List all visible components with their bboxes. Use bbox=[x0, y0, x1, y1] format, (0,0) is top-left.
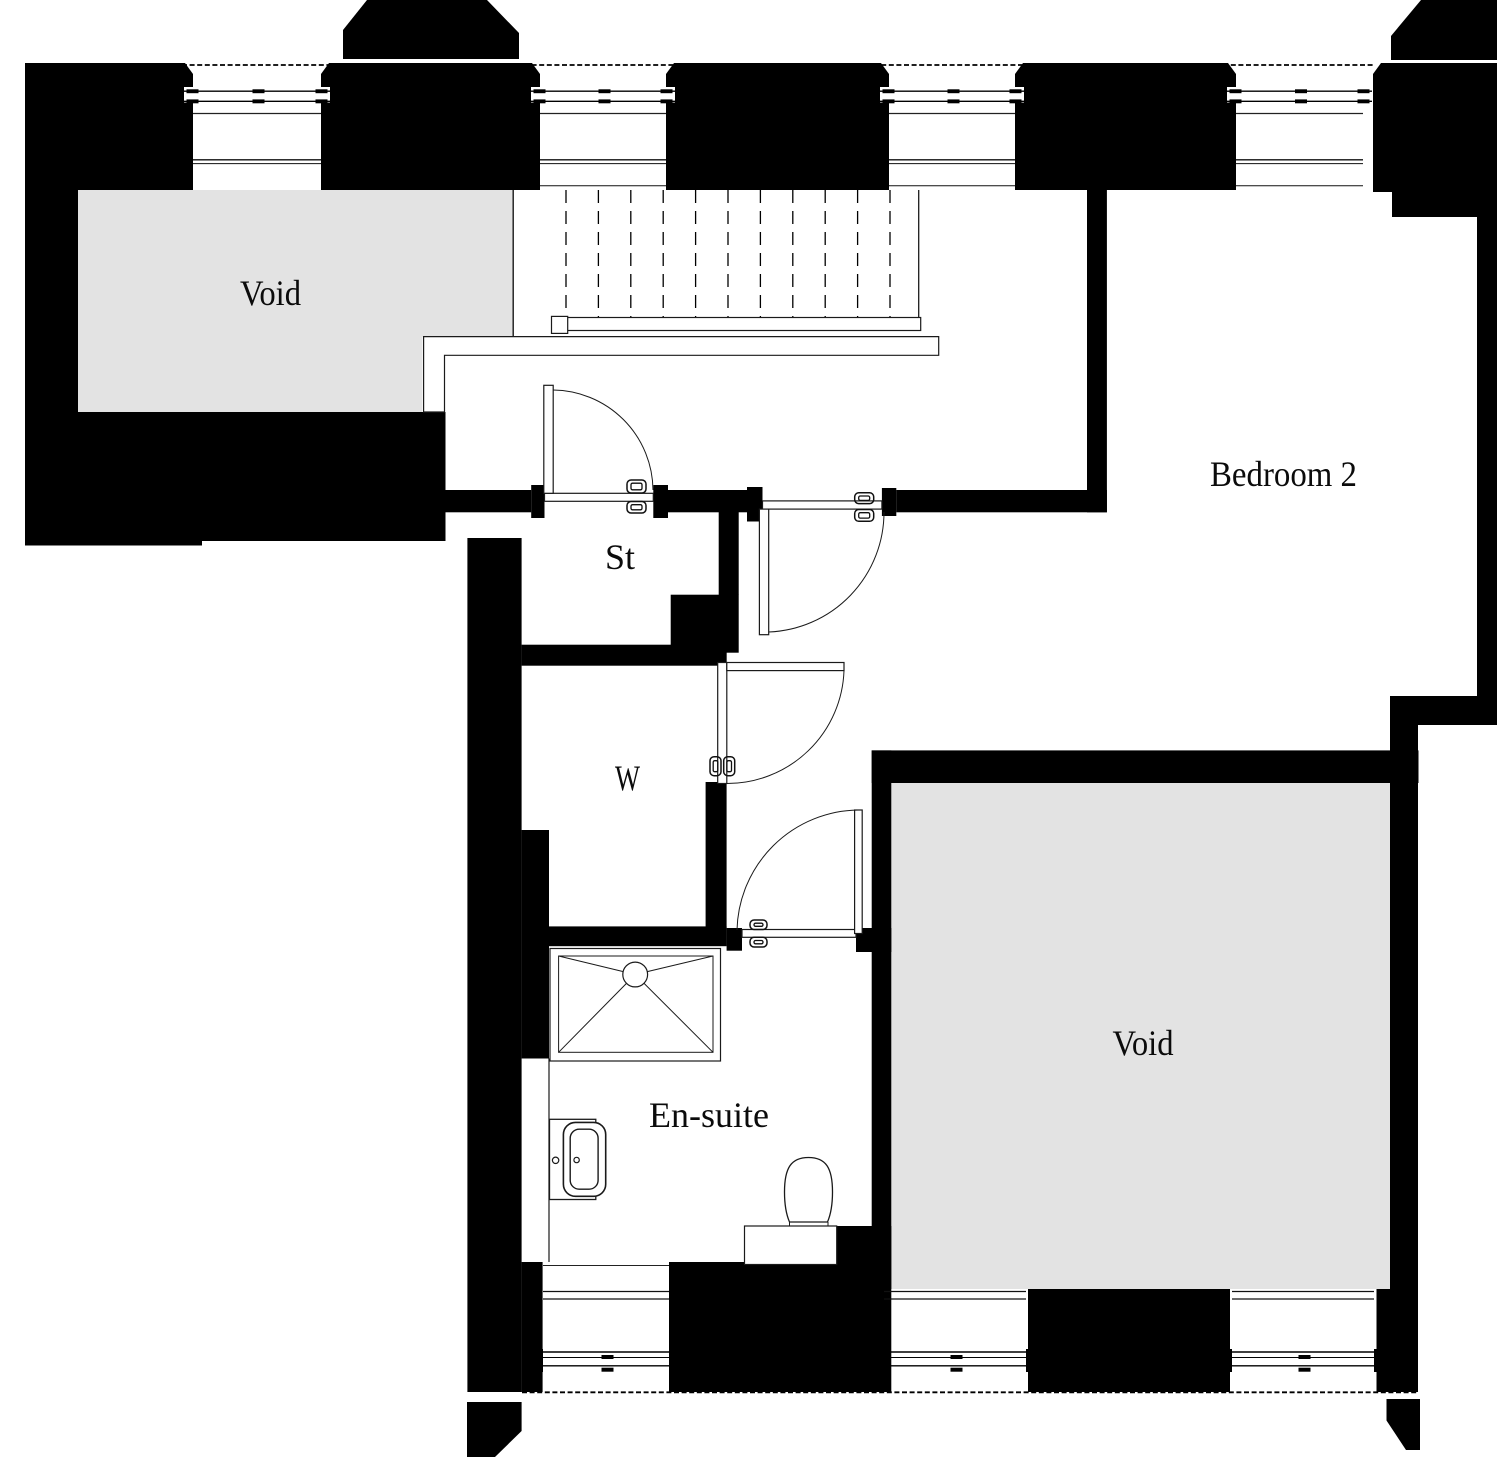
svg-text:En-suite: En-suite bbox=[649, 1095, 769, 1135]
svg-text:St: St bbox=[605, 537, 635, 577]
svg-text:Void: Void bbox=[240, 273, 301, 313]
svg-text:Bedroom 2: Bedroom 2 bbox=[1210, 454, 1357, 494]
svg-text:Void: Void bbox=[1113, 1023, 1174, 1063]
svg-text:W: W bbox=[615, 758, 640, 798]
